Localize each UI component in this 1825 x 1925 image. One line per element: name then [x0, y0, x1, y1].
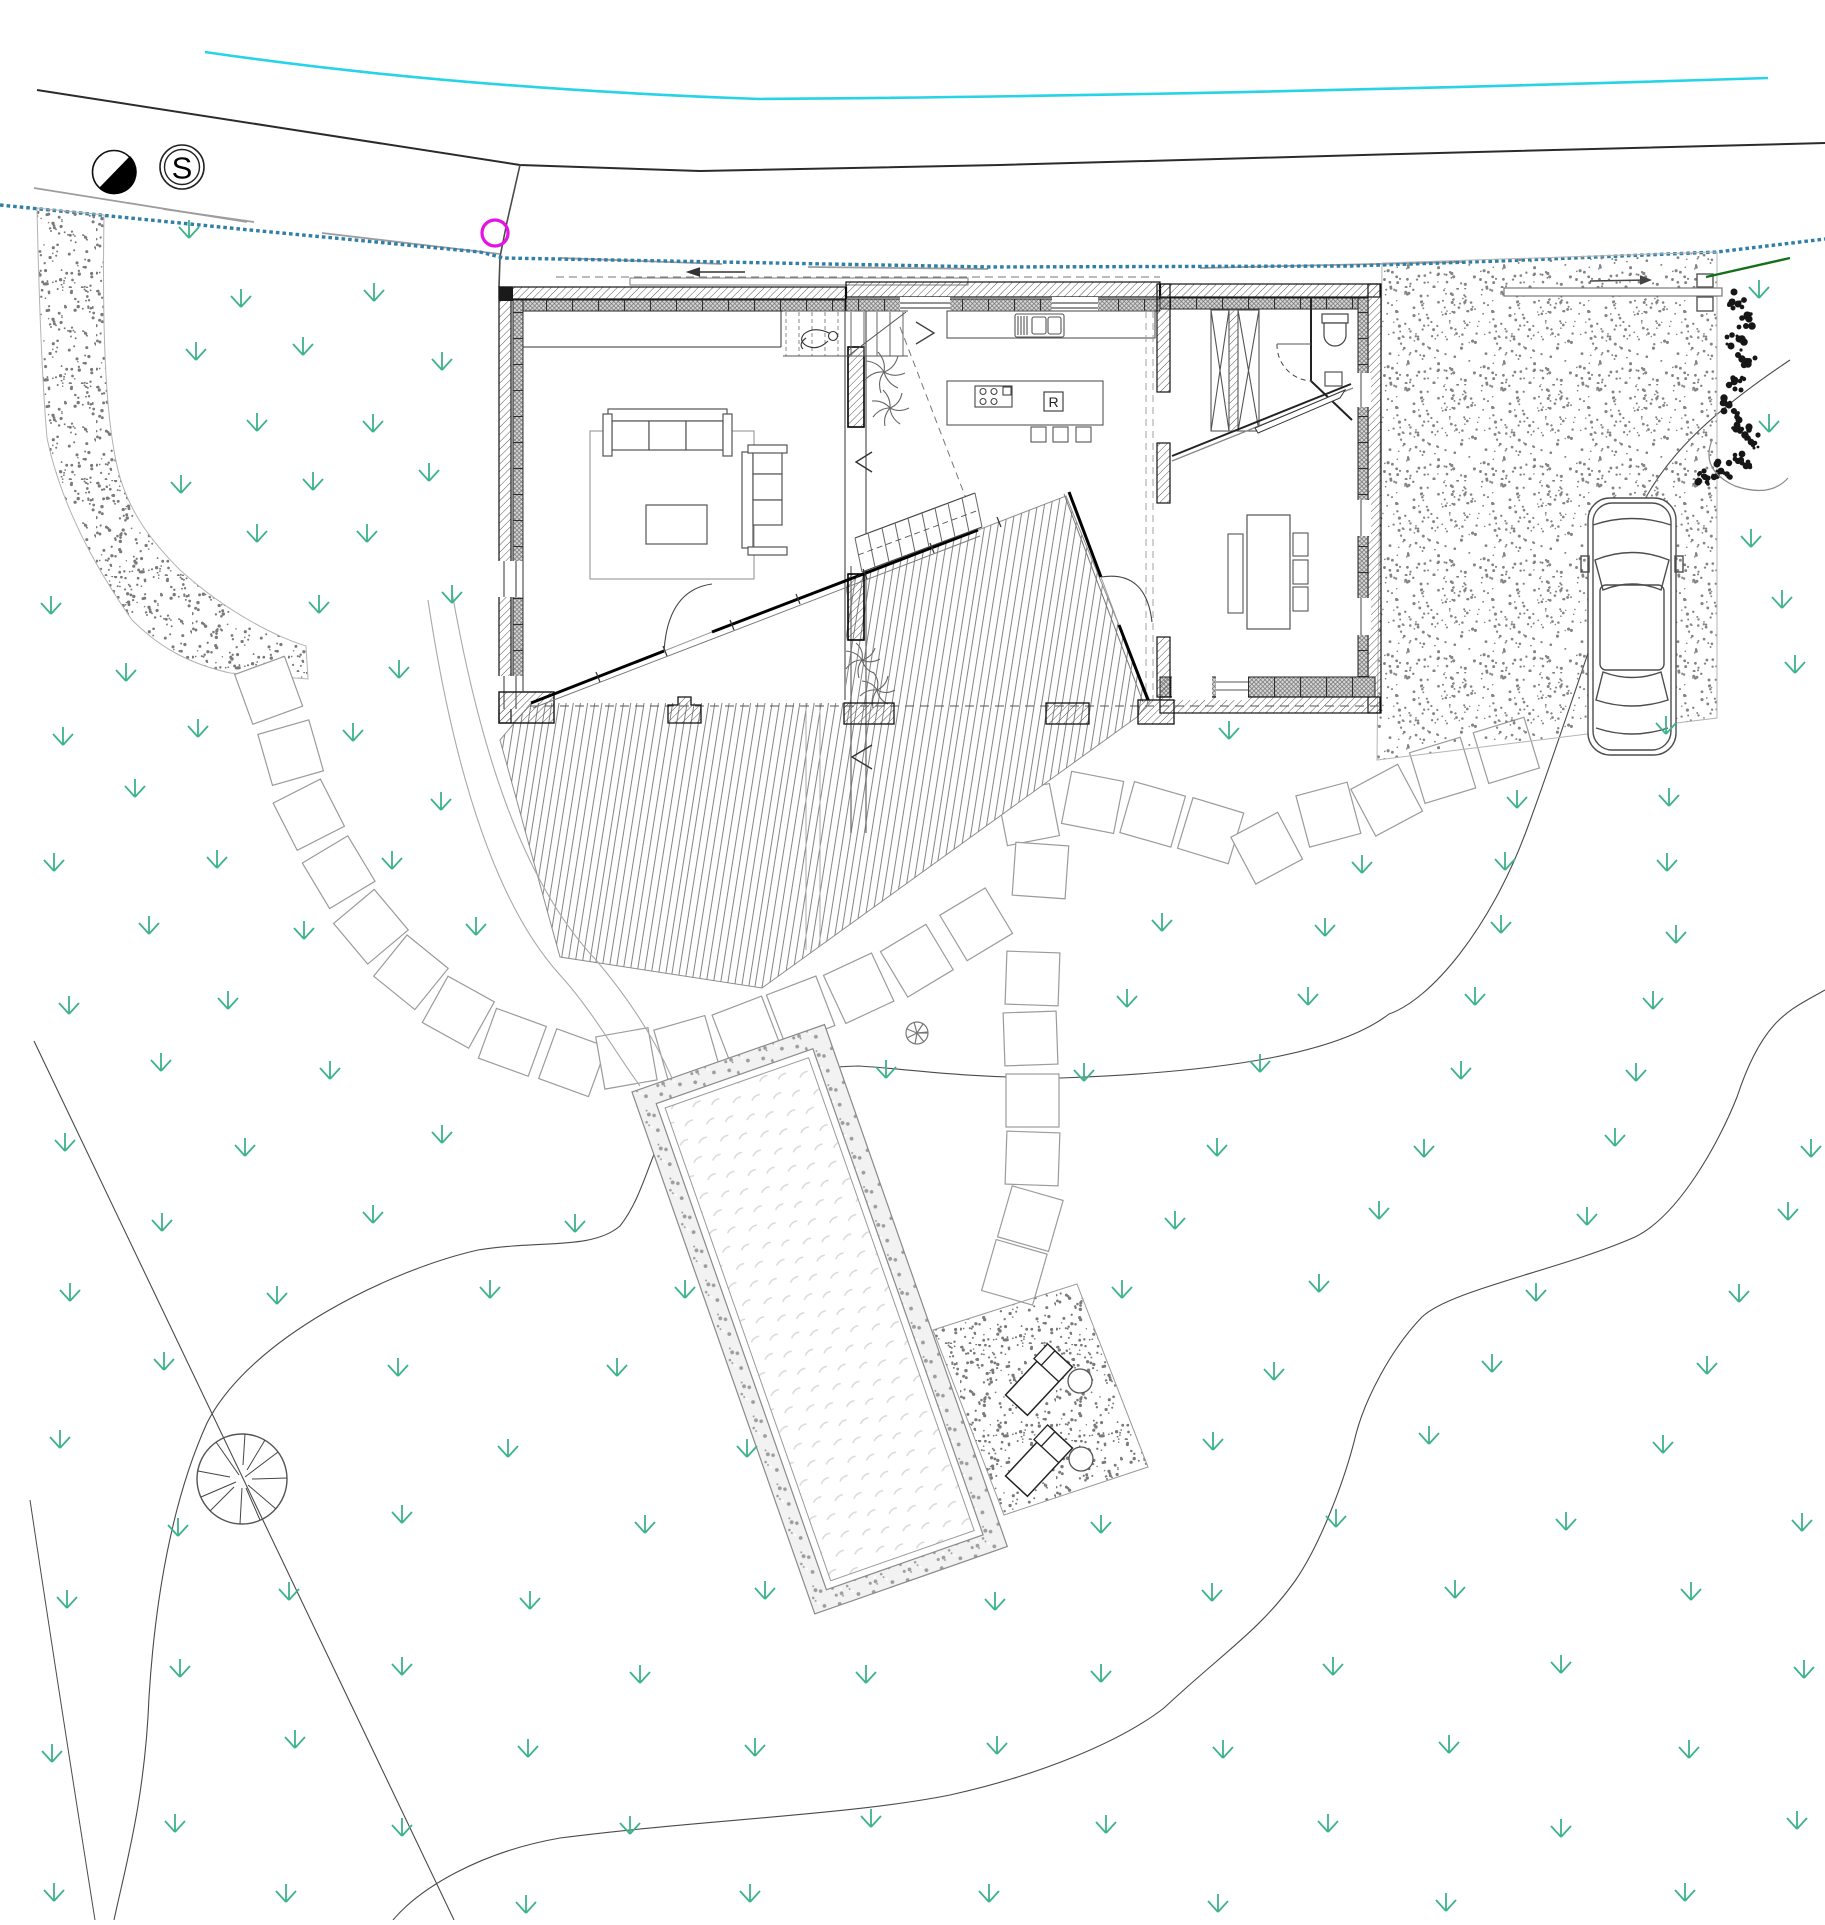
svg-text:R: R	[1048, 394, 1058, 410]
svg-text:S: S	[172, 151, 193, 186]
